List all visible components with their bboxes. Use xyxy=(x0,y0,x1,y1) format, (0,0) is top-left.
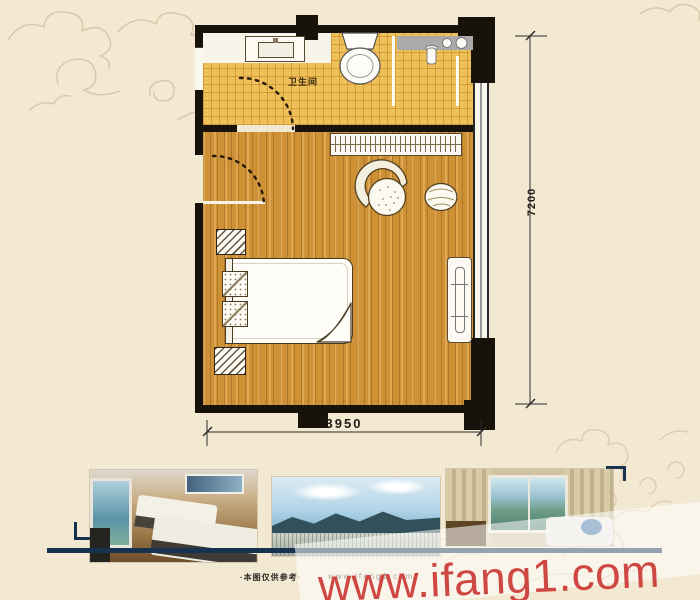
wall-left-middle xyxy=(195,90,203,155)
photo2-cloud xyxy=(292,483,362,501)
wall-bottom xyxy=(195,405,495,413)
hanger-rail xyxy=(331,144,461,145)
wall-left-lower xyxy=(195,203,203,405)
wardrobe xyxy=(330,133,462,156)
tv-tick-top xyxy=(451,284,468,285)
wall-divider-left xyxy=(203,125,237,132)
pillow-bottom xyxy=(222,301,248,327)
window-right xyxy=(473,83,489,338)
photo1-tv xyxy=(90,528,110,562)
vanity xyxy=(245,36,305,62)
window-glass-line xyxy=(480,83,482,338)
vanity-basin xyxy=(258,42,294,58)
pillow-top xyxy=(222,271,248,297)
tv-cabinet xyxy=(447,257,472,343)
photo1-bed-near xyxy=(150,515,257,562)
disclaimer-text: ·本图仅供参考· xyxy=(240,572,301,583)
dim-label-vertical: 7200 xyxy=(526,180,538,224)
pillar-right-upper xyxy=(471,25,495,83)
nightstand-bottom xyxy=(214,347,246,375)
tv-icon xyxy=(455,267,465,333)
entry-threshold xyxy=(203,201,265,204)
screenshot-stage: 卫生间 xyxy=(0,0,700,600)
bathroom-label: 卫生间 xyxy=(288,75,318,88)
photo2-cloud2 xyxy=(367,479,427,495)
photo2-mountains xyxy=(272,505,440,535)
glass-partition-1 xyxy=(392,36,395,106)
floor-plan: 卫生间 xyxy=(0,0,700,460)
wall-divider-right xyxy=(295,125,475,132)
window-left xyxy=(195,47,203,92)
shower-strip xyxy=(397,36,473,50)
dim-label-horizontal: 3950 xyxy=(304,416,384,431)
photo1-wall-art xyxy=(185,474,244,494)
glass-partition-2 xyxy=(456,56,459,106)
faucet-icon xyxy=(273,38,278,43)
wall-top xyxy=(195,25,495,33)
nightstand-top xyxy=(216,229,246,255)
wall-left-upper xyxy=(195,25,203,47)
tv-tick-bottom xyxy=(451,316,468,317)
